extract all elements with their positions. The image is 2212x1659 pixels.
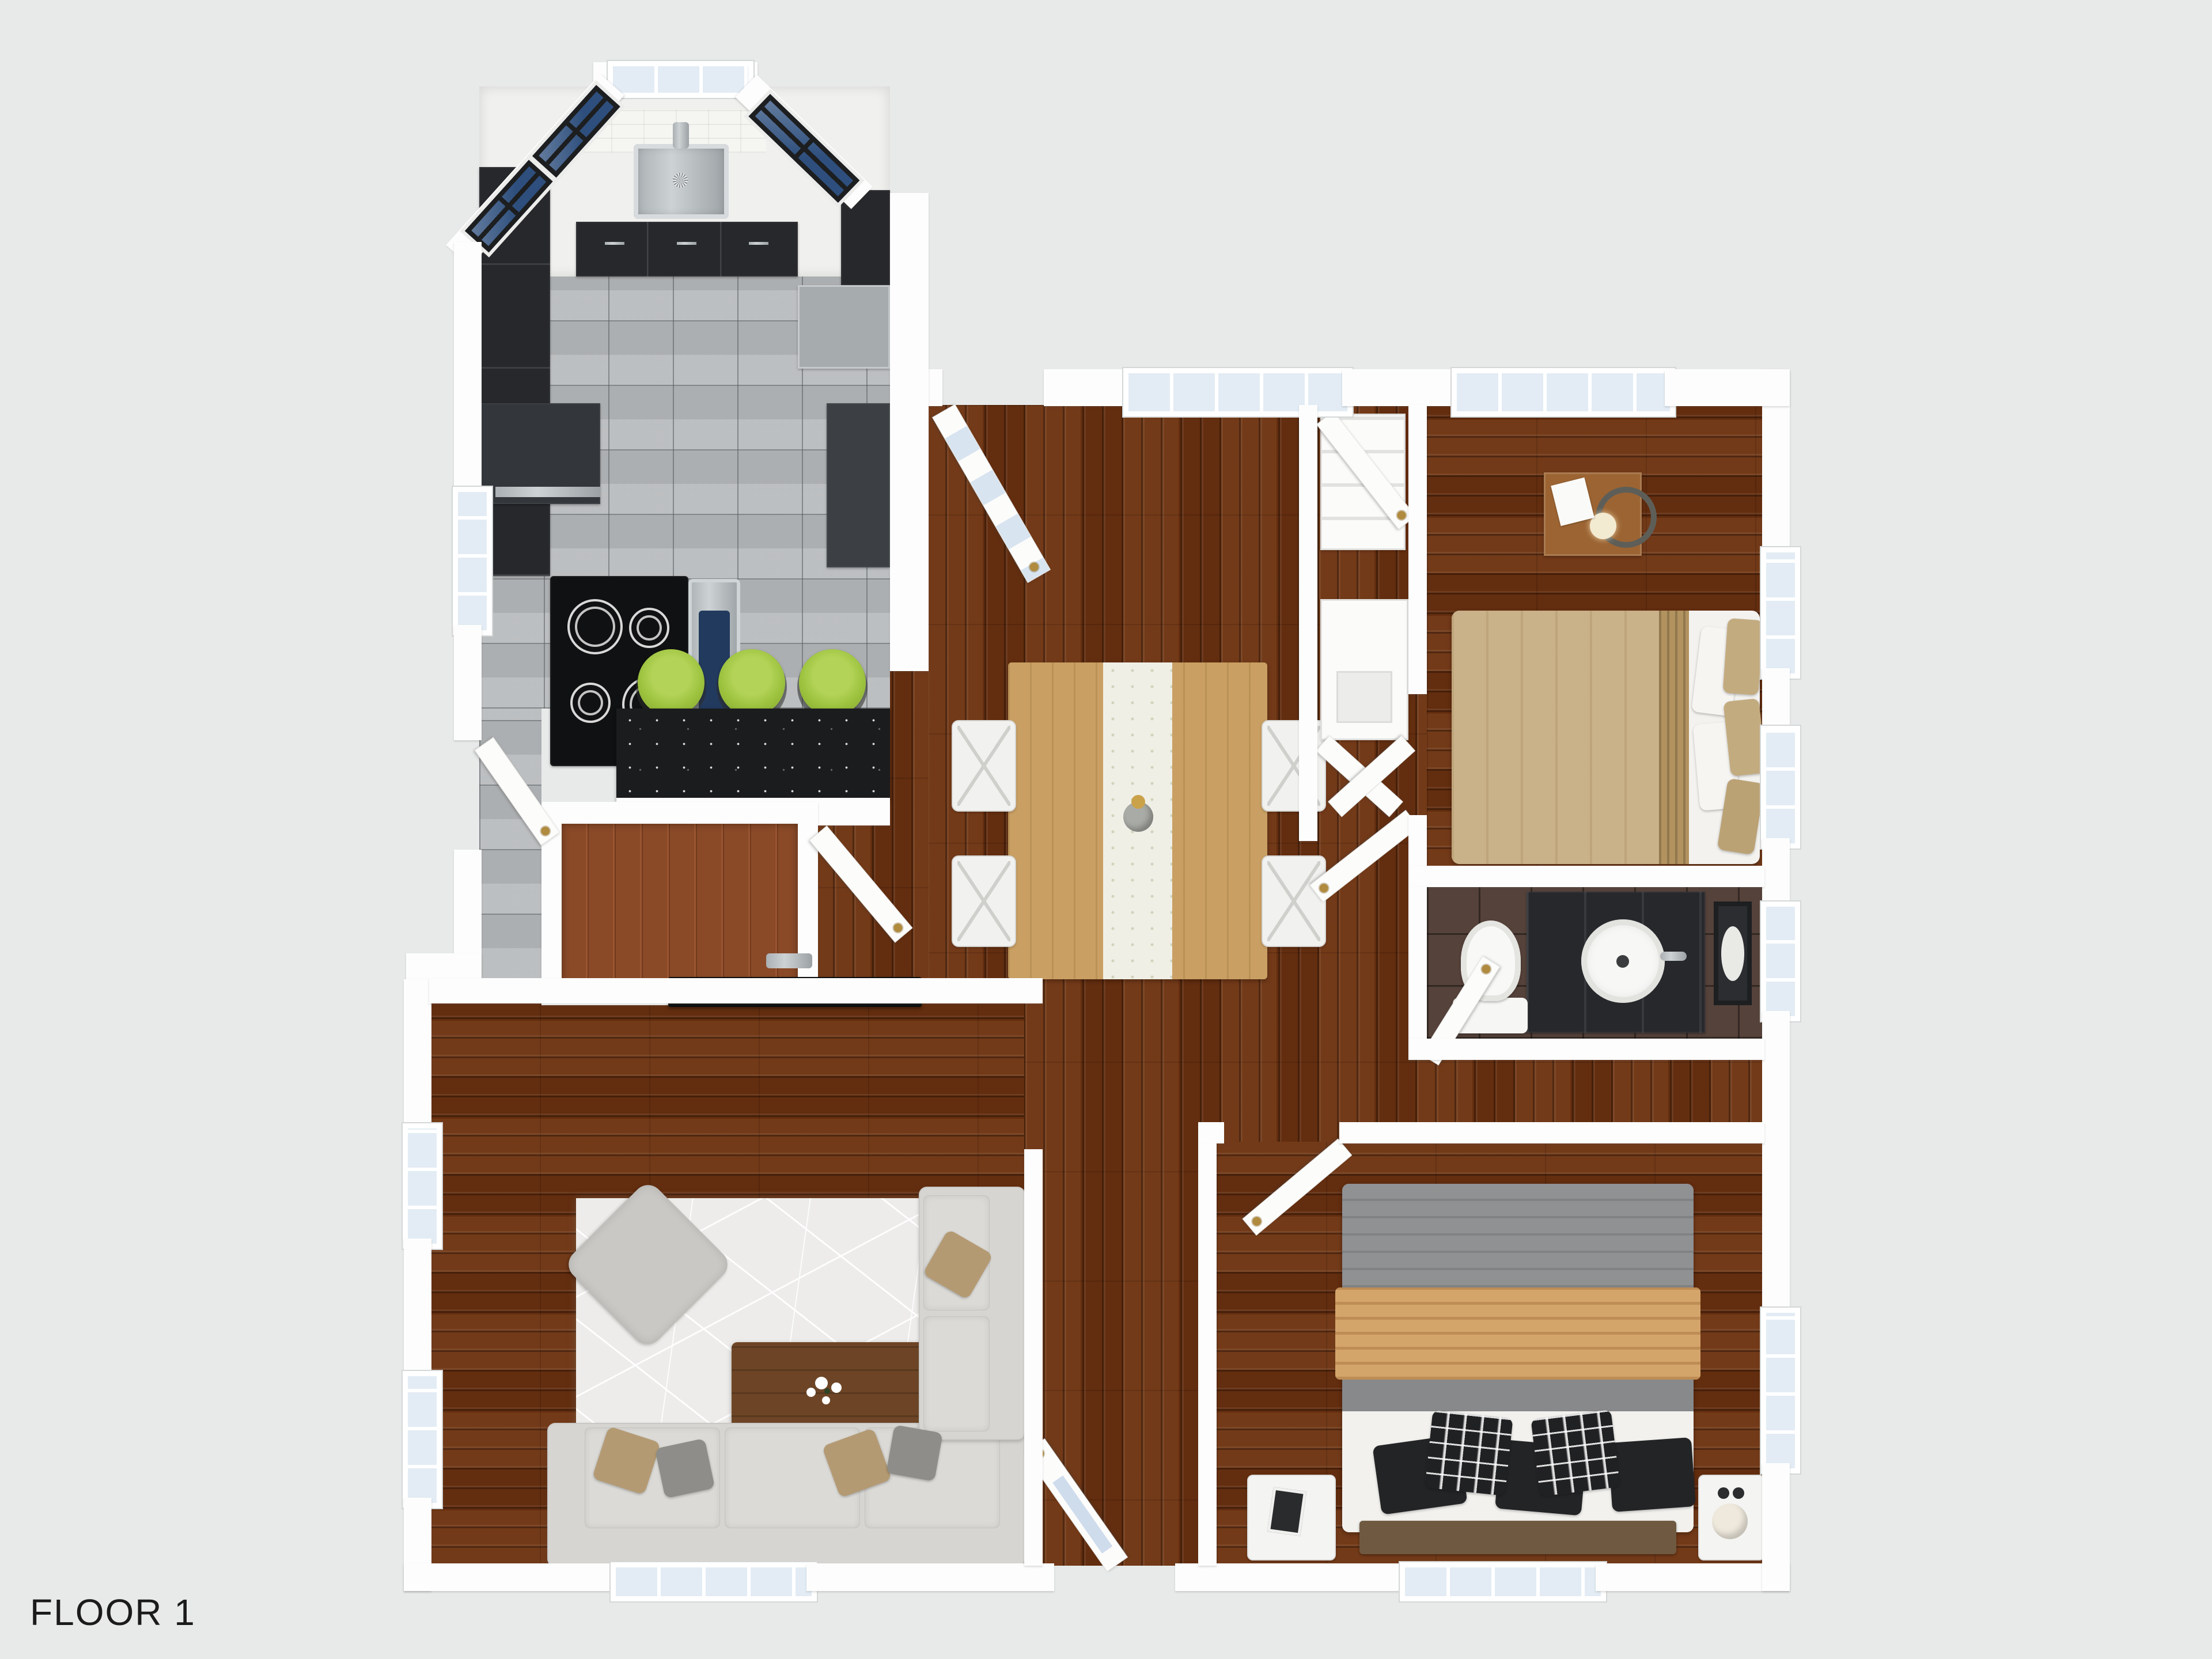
wall bbox=[806, 1563, 1054, 1591]
wall bbox=[1175, 1563, 1400, 1591]
wall bbox=[1762, 1463, 1790, 1591]
bed1-blanket-tan bbox=[1452, 611, 1665, 864]
wall bbox=[890, 193, 929, 671]
wall bbox=[929, 369, 942, 406]
bed2-headboard bbox=[1359, 1521, 1676, 1554]
living-bottom-window bbox=[611, 1562, 817, 1601]
wall bbox=[1762, 668, 1790, 726]
bedroom1-right-window2 bbox=[1761, 726, 1800, 849]
burner bbox=[567, 599, 623, 654]
living-top-wall bbox=[429, 978, 1043, 1003]
dining-chair bbox=[1262, 855, 1326, 947]
wall bbox=[1762, 1011, 1790, 1308]
kitchen-left-window bbox=[453, 487, 492, 635]
bath-mirror-reflection bbox=[1721, 926, 1744, 981]
bed2-top-wall2 bbox=[1339, 1122, 1764, 1143]
living-left-window2 bbox=[403, 1371, 442, 1508]
cabinet-handle bbox=[677, 242, 696, 245]
bedroom1-right-window bbox=[1761, 547, 1800, 679]
sink-faucet bbox=[673, 122, 689, 149]
bar-stool bbox=[638, 649, 704, 716]
bath-top-wall bbox=[1408, 866, 1764, 887]
bar-stool bbox=[718, 649, 785, 716]
bed2-left-wall bbox=[1198, 1143, 1217, 1566]
bed2-duvet-gray bbox=[1342, 1380, 1694, 1411]
door-knob bbox=[539, 825, 551, 837]
tv-mount bbox=[766, 953, 812, 968]
throw-pillow-gray bbox=[655, 1438, 715, 1498]
bathroom-window bbox=[1761, 902, 1800, 1021]
wall bbox=[454, 242, 482, 487]
dining-hall-wall bbox=[1299, 405, 1317, 841]
sofa-cushion bbox=[923, 1316, 990, 1431]
living-left-window bbox=[403, 1123, 442, 1249]
wall bbox=[406, 953, 482, 981]
staircase bbox=[562, 824, 798, 985]
door-knob bbox=[1251, 1215, 1263, 1228]
sink-drain bbox=[673, 173, 688, 188]
bedroom2-right-window bbox=[1761, 1308, 1800, 1474]
bath-left-wall bbox=[1408, 887, 1427, 1060]
wall bbox=[454, 625, 482, 740]
chair-back-pattern bbox=[1267, 861, 1320, 941]
cabinet-handle bbox=[749, 242, 768, 245]
floor-label: FLOOR 1 bbox=[30, 1591, 196, 1634]
paris-book bbox=[1267, 1487, 1306, 1536]
door-knob bbox=[1480, 963, 1493, 975]
table-flowers bbox=[815, 1377, 828, 1389]
wall bbox=[404, 1563, 611, 1591]
bed1-pillow-tan bbox=[1723, 618, 1764, 695]
sphere-lamp bbox=[1712, 1503, 1748, 1539]
kitchen-base-cabinets bbox=[576, 222, 798, 276]
bedroom2-bottom-window bbox=[1400, 1562, 1606, 1601]
throw-pillow-gray bbox=[886, 1425, 942, 1481]
chair-back-pattern bbox=[957, 861, 1010, 941]
wall bbox=[404, 1238, 431, 1371]
door-knob bbox=[892, 922, 904, 934]
bath-bottom-wall bbox=[1408, 1039, 1764, 1060]
pantry-cabinet bbox=[827, 403, 890, 567]
wall bbox=[1665, 369, 1790, 406]
kitchen-top-window bbox=[608, 61, 753, 98]
glasses-dots bbox=[1718, 1487, 1729, 1499]
wall bbox=[1762, 838, 1790, 902]
dining-window bbox=[1123, 368, 1353, 416]
bed2-throw-tan bbox=[1335, 1287, 1700, 1380]
bed2-top-wall bbox=[1198, 1122, 1224, 1143]
wall bbox=[1596, 1563, 1790, 1591]
vase-flowers bbox=[1131, 795, 1145, 809]
door-knob bbox=[1028, 561, 1040, 573]
floor-plan bbox=[0, 0, 2212, 1659]
bar-stool bbox=[799, 649, 866, 716]
dining-chair bbox=[952, 855, 1016, 947]
living-right-wall bbox=[1024, 1149, 1043, 1566]
burner bbox=[570, 683, 611, 723]
wall bbox=[404, 979, 431, 1123]
burner bbox=[629, 608, 669, 648]
wall bbox=[1342, 369, 1452, 406]
bar-counter bbox=[616, 709, 890, 801]
bath-faucet bbox=[1660, 952, 1687, 961]
closet-shelf bbox=[1336, 671, 1392, 723]
hall-bed1-wall bbox=[1408, 405, 1427, 694]
bath-sink-drain bbox=[1616, 955, 1629, 968]
wall bbox=[1044, 369, 1123, 406]
door-knob bbox=[1396, 509, 1408, 521]
bedroom1-top-window bbox=[1452, 368, 1675, 416]
bed2-pillow-checkered bbox=[1425, 1410, 1513, 1496]
bed2-pillow-black bbox=[1608, 1437, 1696, 1512]
chair-back-pattern bbox=[957, 726, 1010, 806]
microwave-front bbox=[495, 487, 600, 497]
cabinet-handle bbox=[605, 242, 624, 245]
bed1-fold-band bbox=[1659, 611, 1689, 864]
bed2-foot-fold-gray bbox=[1342, 1184, 1694, 1287]
door-knob bbox=[1318, 882, 1330, 894]
refrigerator bbox=[798, 285, 890, 369]
bed2-pillow-checkered bbox=[1531, 1410, 1620, 1497]
dining-chair bbox=[952, 720, 1016, 812]
